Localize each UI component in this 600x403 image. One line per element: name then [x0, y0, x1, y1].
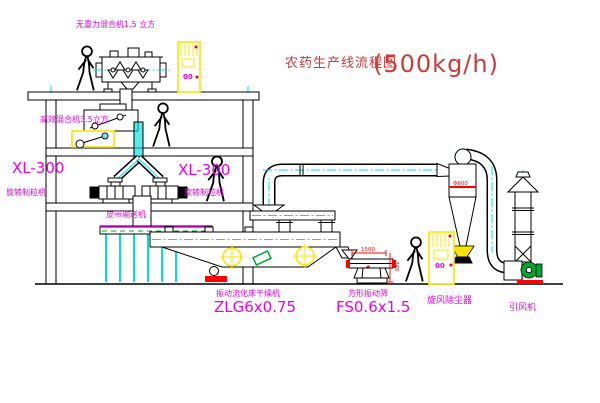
fan-housing [504, 261, 522, 280]
zero-gravity-mixer [93, 48, 170, 110]
motor-base [205, 276, 227, 282]
motor-block [90, 187, 99, 198]
cyclone-outlet-cap [455, 149, 471, 165]
label-cyclone: 旋风除尘器 [427, 294, 472, 306]
person-figure [153, 103, 170, 146]
label-fan: 引风机 [509, 301, 536, 313]
cyclone-dia-dim: Φ600 [453, 181, 468, 187]
y-chute [108, 158, 167, 182]
label-dryer-name: 振动流化床干燥机 [216, 288, 280, 298]
diagram-title: 农药生产线流程图 (500kg/h) [285, 50, 499, 78]
indicator-dot [195, 46, 198, 49]
mixer2-discharge-pipe [134, 122, 143, 157]
indicator-dot [450, 264, 453, 267]
label-granulator-right-name: 旋转制粒机 [184, 187, 224, 197]
sieve-width-dim: 1500 [361, 247, 375, 253]
label-sieve-model: FS0.6x1.5 [336, 298, 410, 316]
control-cabinet-right: 00 [429, 232, 454, 284]
mixer-discharge-funnel [121, 82, 139, 89]
person-figure [77, 46, 94, 90]
label-granulator-left-model: XL-300 [12, 159, 64, 177]
floor-slab-1 [28, 92, 259, 100]
stack-and-fan [504, 170, 543, 284]
label-zero-gravity-mixer: 无重力混合机1.5 立方 [76, 19, 155, 29]
indicator-dot [196, 76, 199, 79]
exhaust-duct [263, 164, 451, 209]
stack-cap [508, 177, 538, 192]
label-belt-conveyor: 皮带输送机 [106, 209, 146, 219]
indicator-dot [449, 235, 452, 238]
cyclone-machine: Φ600 [449, 148, 515, 268]
vibration-motor [210, 267, 219, 276]
flow-diagram-canvas: 00 [0, 0, 600, 403]
granulator-left-machine [90, 182, 135, 203]
sieve-base-frame [354, 268, 389, 278]
label-sieve-name: 方形振动筛 [348, 288, 388, 298]
label-high-efficiency-mixer: 高效混合机3.5立方 [40, 114, 109, 124]
cabinet-display: 00 [435, 262, 445, 270]
title-capacity: (500kg/h) [373, 50, 499, 78]
label-dryer-model: ZLG6x0.75 [214, 298, 296, 316]
label-granulator-right-model: XL-300 [178, 161, 230, 179]
sieve-height-dim: 745 [393, 261, 399, 272]
label-granulator-left-name: 旋转制粒机 [6, 187, 46, 197]
cabinet-display: 00 [183, 73, 193, 81]
exhaust-stack [515, 192, 531, 262]
floor-slab-2 [46, 148, 253, 156]
person-figure [406, 237, 423, 281]
square-sieve-machine: 1500 745 [342, 247, 399, 283]
control-cabinet-top: 00 [178, 42, 200, 92]
fan-base [517, 280, 543, 284]
